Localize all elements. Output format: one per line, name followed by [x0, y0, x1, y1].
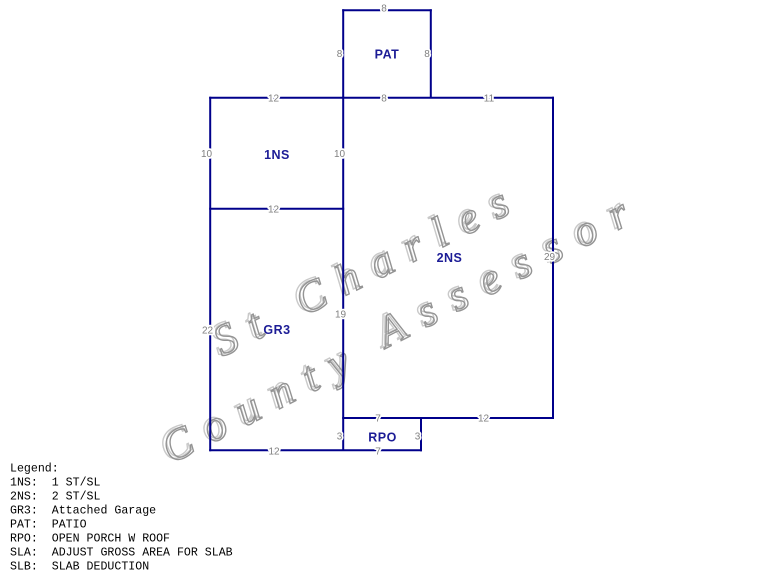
- svg-text:22: 22: [202, 326, 214, 337]
- svg-text:County: County: [154, 329, 372, 473]
- svg-text:2NS: 2NS: [437, 251, 463, 265]
- svg-text:10: 10: [334, 149, 346, 160]
- svg-text:29: 29: [544, 252, 556, 263]
- svg-text:12: 12: [268, 94, 280, 105]
- svg-text:RPO: RPO: [368, 431, 397, 445]
- svg-text:SLB: SLAB DEDUCTION: SLB: SLAB DEDUCTION: [10, 561, 149, 574]
- svg-text:GR3: GR3: [263, 323, 290, 337]
- svg-text:2NS: 2 ST/SL: 2NS: 2 ST/SL: [10, 491, 100, 504]
- svg-text:1NS: 1 ST/SL: 1NS: 1 ST/SL: [10, 477, 100, 490]
- svg-text:GR3: Attached Garage: GR3: Attached Garage: [10, 505, 156, 518]
- svg-text:10: 10: [201, 149, 213, 160]
- svg-text:PAT: PAT: [375, 48, 400, 62]
- svg-text:3: 3: [337, 432, 343, 443]
- svg-text:1NS: 1NS: [264, 148, 290, 162]
- svg-text:12: 12: [268, 205, 280, 216]
- svg-text:19: 19: [335, 310, 347, 321]
- svg-text:PAT: PATIO: PAT: PATIO: [10, 519, 87, 532]
- svg-text:8: 8: [337, 49, 343, 60]
- svg-text:7: 7: [375, 414, 381, 425]
- svg-text:11: 11: [484, 94, 495, 105]
- svg-text:RPO: OPEN PORCH W ROOF: RPO: OPEN PORCH W ROOF: [10, 533, 170, 546]
- svg-text:3: 3: [415, 432, 421, 443]
- svg-text:8: 8: [381, 94, 387, 105]
- svg-text:12: 12: [268, 447, 280, 458]
- svg-text:7: 7: [375, 447, 381, 458]
- svg-text:8: 8: [381, 4, 387, 15]
- svg-text:12: 12: [478, 414, 490, 425]
- svg-text:Legend:: Legend:: [10, 463, 59, 476]
- svg-text:SLA: ADJUST GROSS AREA FOR SL: SLA: ADJUST GROSS AREA FOR SLAB: [10, 547, 233, 560]
- svg-text:8: 8: [424, 49, 430, 60]
